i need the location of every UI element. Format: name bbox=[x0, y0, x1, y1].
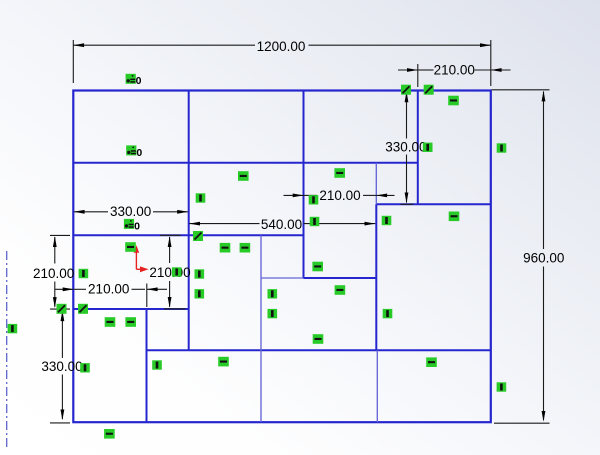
svg-text:210.00: 210.00 bbox=[434, 62, 475, 77]
svg-text:210.00: 210.00 bbox=[319, 188, 360, 203]
svg-text:330.00: 330.00 bbox=[41, 359, 82, 374]
svg-text:210.00: 210.00 bbox=[33, 266, 74, 281]
svg-text:210.00: 210.00 bbox=[88, 282, 129, 297]
svg-text:210.00: 210.00 bbox=[149, 265, 190, 280]
svg-text:0: 0 bbox=[136, 147, 142, 159]
svg-text:0: 0 bbox=[136, 75, 142, 87]
svg-text:0: 0 bbox=[134, 220, 140, 232]
svg-text:960.00: 960.00 bbox=[523, 251, 564, 266]
svg-text:330.00: 330.00 bbox=[110, 204, 151, 219]
svg-text:540.00: 540.00 bbox=[261, 217, 302, 232]
svg-text:1200.00: 1200.00 bbox=[257, 39, 306, 54]
svg-text:330.00: 330.00 bbox=[385, 139, 426, 154]
